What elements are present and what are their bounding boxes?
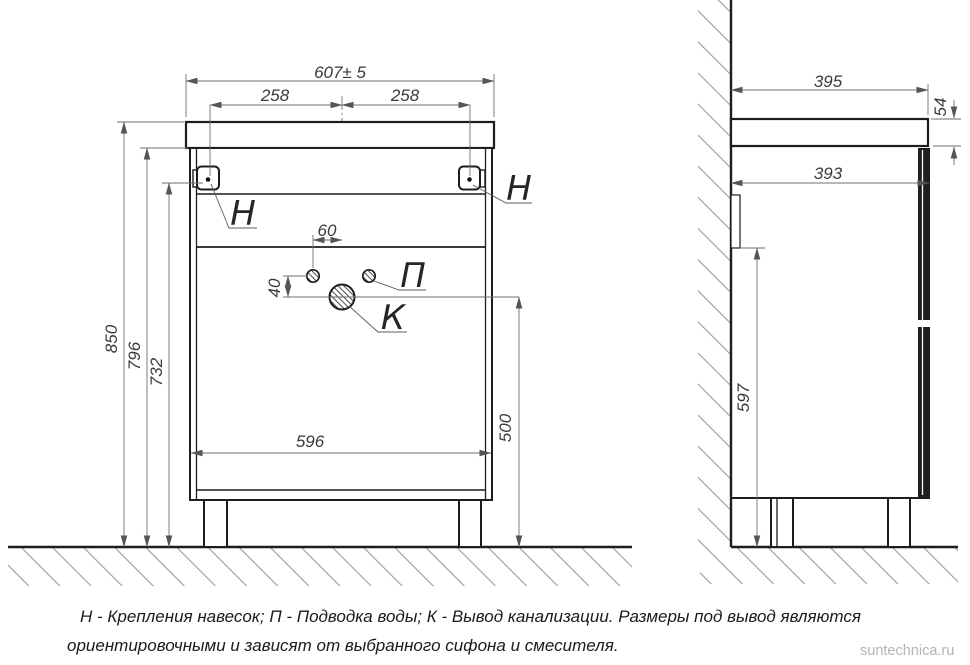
dim-text-depth-body: 393 xyxy=(814,164,843,183)
side-legs xyxy=(771,498,910,547)
left-bracket-hole xyxy=(206,177,211,182)
dim-text-height-body-top: 796 xyxy=(125,341,144,370)
dim-text-hole-spacing: 60 xyxy=(318,221,337,240)
front-view: 607± 5 258 258 60 40 500 596 850 796 732… xyxy=(8,63,632,586)
technical-drawing-page: 607± 5 258 258 60 40 500 596 850 796 732… xyxy=(0,0,970,665)
right-bracket-hole xyxy=(467,177,472,182)
dim-text-body-width: 596 xyxy=(296,432,325,451)
dim-text-back-rail-height: 597 xyxy=(734,383,753,412)
front-floor-hatch xyxy=(8,547,632,586)
side-back-rail xyxy=(731,195,740,248)
label-bracket-right: Н xyxy=(506,169,532,209)
side-wall xyxy=(698,0,731,547)
dim-text-height-total: 850 xyxy=(102,324,121,353)
water-hole-left xyxy=(307,270,319,282)
dim-text-countertop-thickness: 54 xyxy=(931,98,950,117)
side-floor xyxy=(700,547,958,584)
dim-text-drain-height: 500 xyxy=(496,413,515,442)
front-left-leg xyxy=(204,500,227,547)
dim-text-bracket-offset-left: 258 xyxy=(260,86,290,105)
legend-line-2: ориентировочными и зависят от выбранного… xyxy=(67,636,619,656)
side-door-gap xyxy=(917,320,932,327)
label-water-supply: П xyxy=(400,256,426,296)
side-countertop xyxy=(731,119,928,146)
side-back-leg xyxy=(771,498,793,547)
wall-hatch xyxy=(698,0,731,547)
vanity-cabinet-drawing: 607± 5 258 258 60 40 500 596 850 796 732… xyxy=(0,0,970,665)
side-door xyxy=(917,148,932,497)
side-view: 395 54 393 597 xyxy=(698,0,961,584)
dim-text-bracket-offset-right: 258 xyxy=(390,86,420,105)
front-countertop xyxy=(186,122,494,148)
front-legs xyxy=(204,500,481,547)
dim-text-hole-drop: 40 xyxy=(265,278,284,297)
water-hole-right xyxy=(363,270,375,282)
watermark: suntechnica.ru xyxy=(860,643,954,659)
label-drain: К xyxy=(381,298,407,338)
side-front-leg xyxy=(888,498,910,547)
front-right-leg xyxy=(459,500,481,547)
label-bracket-left: Н xyxy=(230,194,256,234)
dim-text-height-brackets: 732 xyxy=(147,357,166,386)
front-cabinet-outline xyxy=(186,122,494,500)
side-floor-hatch xyxy=(700,547,958,584)
dim-text-depth-total: 395 xyxy=(814,72,843,91)
dim-text-width-total: 607± 5 xyxy=(314,63,366,82)
front-floor xyxy=(8,547,632,586)
legend-line-1: Н - Крепления навесок; П - Подводка воды… xyxy=(80,607,861,627)
